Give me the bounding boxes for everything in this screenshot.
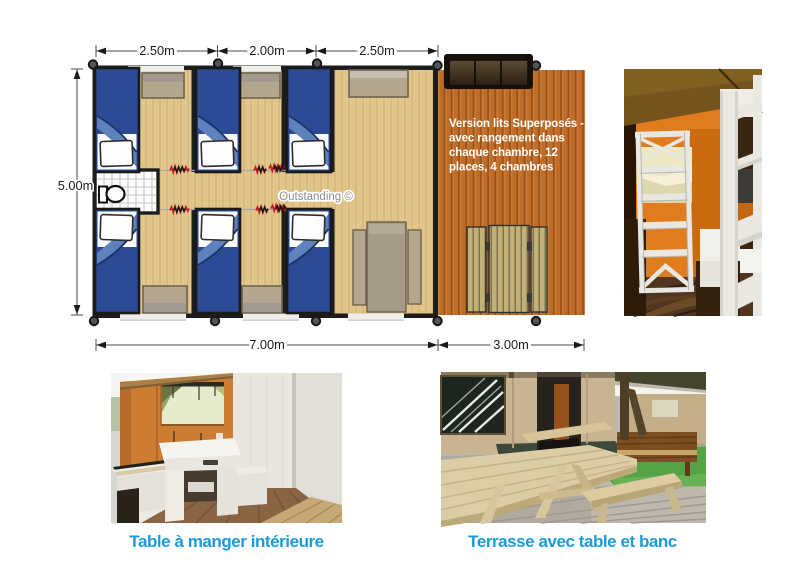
svg-text:7.00m: 7.00m xyxy=(249,337,285,352)
svg-text:Version lits Superposés -: Version lits Superposés - xyxy=(449,118,584,130)
svg-text:2.00m: 2.00m xyxy=(249,43,285,58)
svg-text:avec rangement dans: avec rangement dans xyxy=(449,133,565,145)
svg-text:Outstanding ©: Outstanding © xyxy=(279,191,353,203)
svg-text:3.00m: 3.00m xyxy=(493,337,529,352)
svg-text:Terrasse avec table et banc: Terrasse avec table et banc xyxy=(468,532,677,551)
svg-text:Table à manger intérieure: Table à manger intérieure xyxy=(129,532,323,551)
svg-text:chaque chambre, 12: chaque chambre, 12 xyxy=(449,147,558,159)
svg-text:5.00m: 5.00m xyxy=(58,178,94,193)
svg-text:places, 4 chambres: places, 4 chambres xyxy=(449,162,553,174)
svg-text:2.50m: 2.50m xyxy=(139,43,175,58)
svg-text:2.50m: 2.50m xyxy=(359,43,395,58)
